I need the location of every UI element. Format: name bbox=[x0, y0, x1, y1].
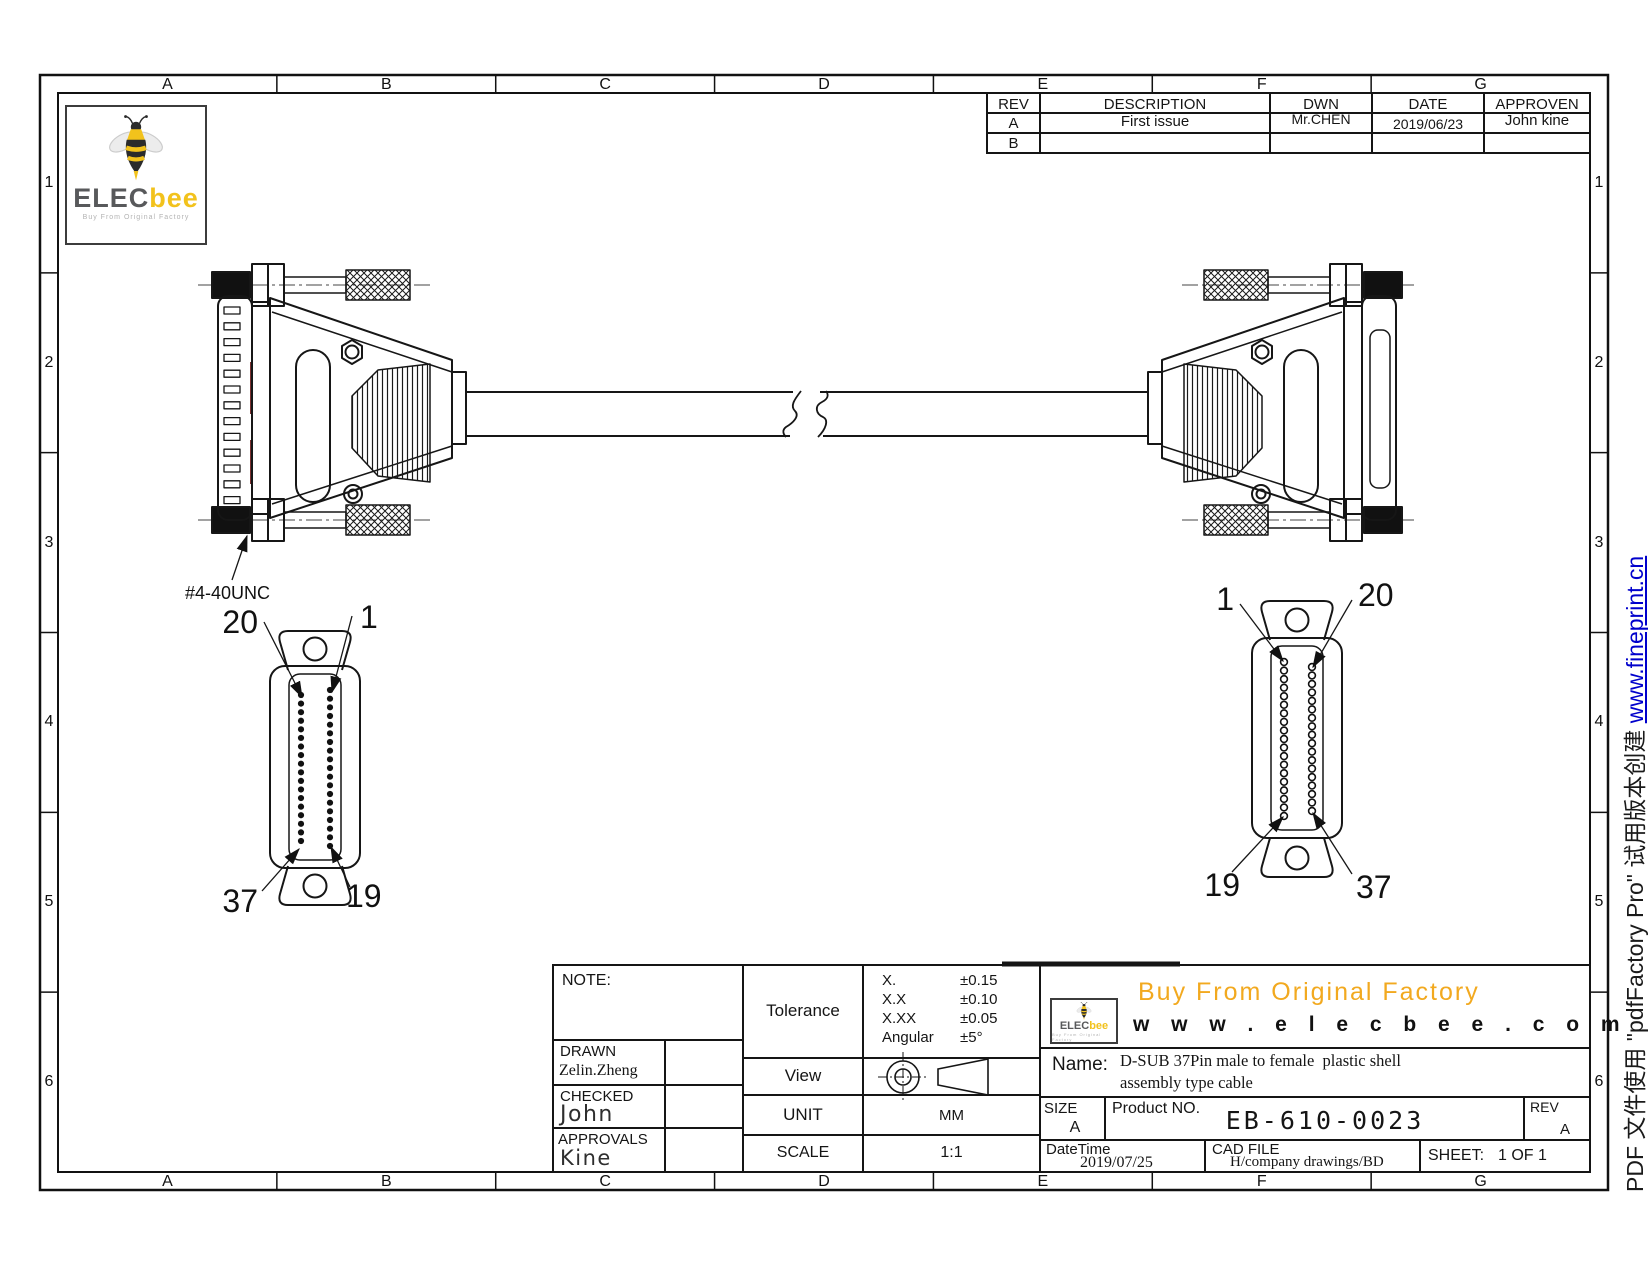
pin-label: 1 bbox=[1216, 581, 1234, 617]
drawn-name: Zelin.Zheng bbox=[559, 1061, 669, 1081]
fineprint-link[interactable]: www.fineprint.cn bbox=[1622, 556, 1648, 723]
pin-column-right bbox=[327, 687, 333, 849]
pdf-watermark: PDF 文件使用 "pdfFactory Pro" 试用版本创建 www.fin… bbox=[1616, 556, 1650, 1192]
rev-a-dwn: Mr.CHEN bbox=[1270, 110, 1372, 128]
grip-hatch bbox=[1184, 364, 1262, 482]
break-symbol bbox=[783, 391, 801, 437]
mini-company-logo: ELECbee Buy From Original Factory bbox=[1050, 998, 1118, 1044]
zone-letter: E bbox=[1028, 76, 1058, 92]
product-name-line2: assembly type cable bbox=[1120, 1073, 1590, 1093]
size-label: SIZE bbox=[1044, 1099, 1100, 1117]
tolerance-xxx-label: X.XX bbox=[882, 1009, 952, 1027]
zone-number-left: 1 bbox=[40, 174, 58, 190]
zone-number-right: 6 bbox=[1590, 1073, 1608, 1089]
note-label: NOTE: bbox=[562, 971, 672, 991]
zone-number-right: 2 bbox=[1590, 354, 1608, 370]
zone-number-left: 4 bbox=[40, 713, 58, 729]
left-connector-face-view: 20 1 37 19 bbox=[222, 599, 381, 919]
right-connector-face-view: 1 20 19 37 bbox=[1204, 577, 1393, 905]
left-connector-side-view bbox=[198, 264, 466, 541]
knurled-barrel bbox=[346, 270, 410, 300]
brand-tagline: Buy From Original Factory bbox=[1052, 1032, 1116, 1042]
connector-pin-teeth bbox=[224, 307, 240, 504]
thread-label: #4-40UNC bbox=[185, 583, 270, 603]
rev-a-approven: John kine bbox=[1484, 111, 1590, 129]
drawn-label: DRAWN bbox=[560, 1042, 660, 1060]
sheet-cell: SHEET: 1 OF 1 bbox=[1428, 1146, 1588, 1166]
rev-b-cell: B bbox=[987, 134, 1040, 152]
pin-label: 1 bbox=[360, 599, 378, 635]
description-col-header: DESCRIPTION bbox=[1040, 95, 1270, 113]
socket-column-left bbox=[1281, 659, 1288, 820]
zone-letter: B bbox=[371, 1173, 401, 1189]
zone-letter: A bbox=[152, 1173, 182, 1189]
unit-value: MM bbox=[863, 1104, 1040, 1126]
zone-letter: B bbox=[371, 76, 401, 92]
zone-number-right: 1 bbox=[1590, 174, 1608, 190]
cable bbox=[466, 391, 1148, 437]
drawing-sheet: #4-40UNC 20 1 37 19 bbox=[0, 0, 1650, 1275]
knurled-barrel bbox=[1204, 505, 1268, 535]
zone-letter: C bbox=[590, 76, 620, 92]
brand-text: ELECbee bbox=[73, 185, 199, 212]
pin-label: 20 bbox=[222, 604, 258, 640]
size-value: A bbox=[1055, 1118, 1095, 1138]
tolerance-x-value: ±0.15 bbox=[960, 971, 1030, 989]
knurled-barrel bbox=[1204, 270, 1268, 300]
grip-hatch bbox=[352, 364, 430, 482]
zone-number-left: 2 bbox=[40, 354, 58, 370]
approvals-name: Kine bbox=[560, 1146, 670, 1170]
socket-column-right bbox=[1309, 664, 1316, 815]
zone-letter: E bbox=[1028, 1173, 1058, 1189]
banner-title: Buy From Original Factory bbox=[1138, 978, 1468, 1006]
tolerance-xxx-value: ±0.05 bbox=[960, 1009, 1030, 1027]
zone-letter: D bbox=[809, 76, 839, 92]
view-label: View bbox=[743, 1065, 863, 1087]
thread-callout: #4-40UNC bbox=[185, 536, 270, 603]
tolerance-angular-value: ±5° bbox=[960, 1028, 1030, 1046]
name-label: Name: bbox=[1052, 1053, 1122, 1077]
zone-number-right: 3 bbox=[1590, 534, 1608, 550]
thumbscrew-knob bbox=[1364, 272, 1402, 298]
zone-letter: F bbox=[1247, 76, 1277, 92]
scale-value: 1:1 bbox=[863, 1142, 1040, 1164]
brand-tagline: Buy From Original Factory bbox=[83, 214, 190, 221]
zone-letter: F bbox=[1247, 1173, 1277, 1189]
zone-number-right: 4 bbox=[1590, 713, 1608, 729]
tolerance-xx-label: X.X bbox=[882, 990, 952, 1008]
unit-label: UNIT bbox=[743, 1104, 863, 1126]
zone-letter: D bbox=[809, 1173, 839, 1189]
date-col-header: DATE bbox=[1372, 95, 1484, 113]
pin-label: 37 bbox=[222, 883, 258, 919]
pin-label: 37 bbox=[1356, 869, 1392, 905]
company-logo: ELECbee Buy From Original Factory bbox=[65, 105, 207, 245]
tolerance-label: Tolerance bbox=[743, 1000, 863, 1022]
bee-icon bbox=[107, 113, 165, 185]
thumbscrew-knob bbox=[212, 272, 250, 298]
knurled-barrel bbox=[346, 505, 410, 535]
rev-a-date: 2019/06/23 bbox=[1372, 115, 1484, 133]
product-name-line1: D-SUB 37Pin male to female plastic shell bbox=[1120, 1051, 1590, 1071]
checked-name: John bbox=[560, 1101, 670, 1127]
datetime-value: 2019/07/25 bbox=[1080, 1154, 1210, 1171]
zone-letter: A bbox=[152, 76, 182, 92]
zone-number-right: 5 bbox=[1590, 893, 1608, 909]
sheet-value: 1 OF 1 bbox=[1498, 1147, 1547, 1165]
cadfile-value: H/company drawings/BD bbox=[1230, 1154, 1420, 1171]
rev-value: A bbox=[1545, 1120, 1585, 1138]
tolerance-x-label: X. bbox=[882, 971, 952, 989]
zone-letter: G bbox=[1466, 76, 1496, 92]
scale-label: SCALE bbox=[743, 1142, 863, 1164]
pin-label: 19 bbox=[346, 878, 382, 914]
banner-url[interactable]: w w w . e l e c b e e . c o m bbox=[1133, 1012, 1493, 1038]
zone-letter: G bbox=[1466, 1173, 1496, 1189]
zone-number-left: 3 bbox=[40, 534, 58, 550]
brand-text: ELECbee bbox=[1060, 1021, 1108, 1032]
bee-icon bbox=[1073, 1002, 1095, 1021]
rev-col-header: REV bbox=[987, 95, 1040, 113]
zone-letter: C bbox=[590, 1173, 620, 1189]
tolerance-xx-value: ±0.10 bbox=[960, 990, 1030, 1008]
zone-number-left: 5 bbox=[40, 893, 58, 909]
watermark-text: PDF 文件使用 "pdfFactory Pro" 试用版本创建 bbox=[1622, 723, 1648, 1192]
pin-label: 20 bbox=[1358, 577, 1394, 613]
rev-label: REV bbox=[1530, 1099, 1580, 1115]
break-symbol bbox=[817, 391, 828, 437]
pin-label: 19 bbox=[1204, 867, 1240, 903]
right-connector-side-view bbox=[1148, 264, 1416, 541]
tolerance-angular-label: Angular bbox=[882, 1028, 957, 1046]
rev-a-description: First issue bbox=[1040, 112, 1270, 130]
zone-number-left: 6 bbox=[40, 1073, 58, 1089]
product-no-value: EB-610-0023 bbox=[1140, 1104, 1510, 1136]
pin-column-left bbox=[298, 692, 304, 844]
rev-a-cell: A bbox=[987, 114, 1040, 132]
sheet-label: SHEET: bbox=[1428, 1147, 1484, 1165]
